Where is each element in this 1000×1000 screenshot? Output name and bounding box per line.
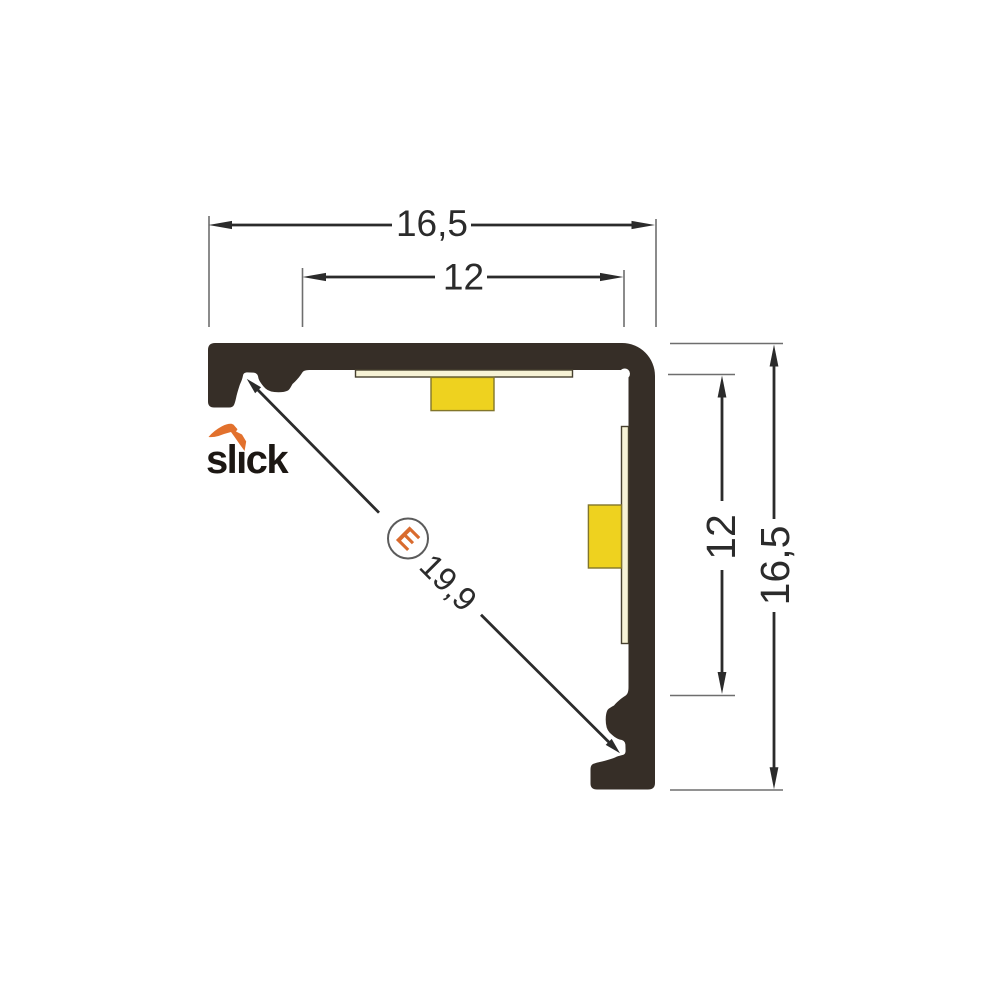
svg-text:16,5: 16,5 — [396, 203, 468, 244]
svg-text:12: 12 — [443, 257, 484, 298]
svg-text:slıck: slıck — [206, 438, 289, 482]
svg-text:16,5: 16,5 — [752, 526, 798, 606]
svg-text:12: 12 — [698, 514, 744, 560]
